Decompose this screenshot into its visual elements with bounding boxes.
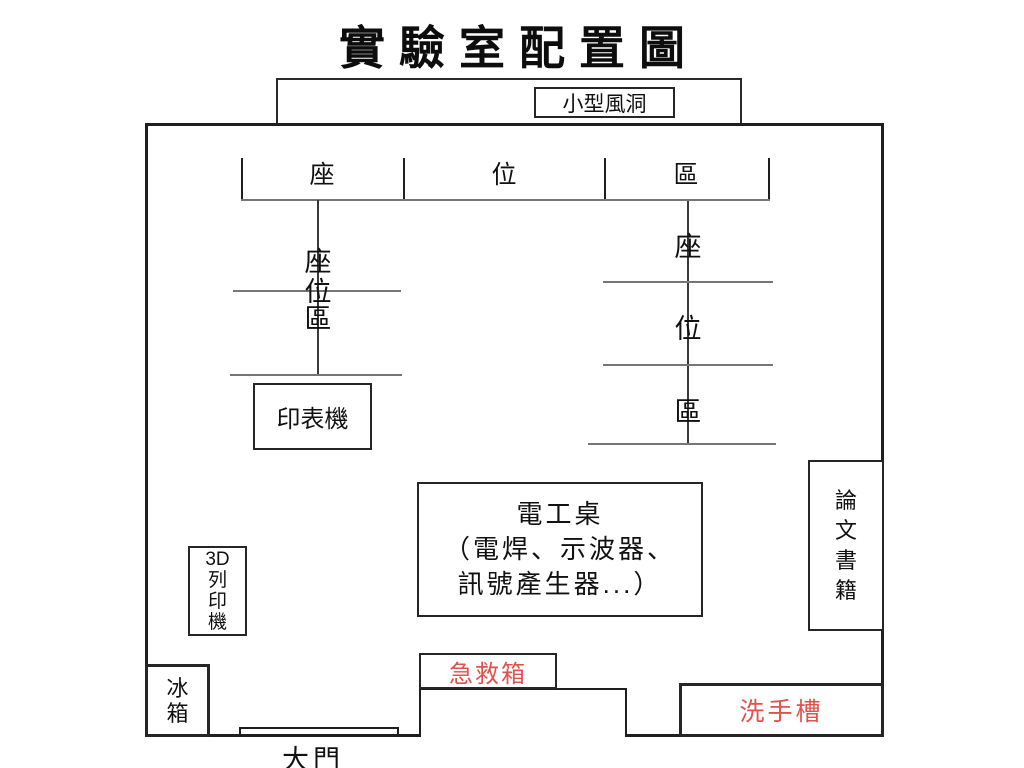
books-char-4: 籍: [835, 576, 857, 606]
wall-top: [145, 123, 884, 126]
sink-box: 洗手槽: [679, 683, 884, 737]
wall-left: [145, 123, 148, 737]
right-seating-char-2: 位: [675, 316, 702, 343]
left-seating-char-1: 座: [305, 249, 332, 276]
printer-box: 印表機: [253, 383, 372, 450]
printer-3d-line-2: 列: [208, 570, 227, 591]
door-label: 大門: [282, 738, 344, 768]
workbench-line-3: 訊號產生器...）: [458, 567, 663, 602]
page-title: 實驗室配置圖: [0, 12, 1024, 78]
first-aid-box: 急救箱: [419, 653, 557, 689]
fridge-char-2: 箱: [166, 701, 188, 726]
seating-bar-tick-4: [768, 158, 770, 201]
counter-right-edge: [625, 690, 627, 736]
seating-bar-label-1: 座: [309, 162, 334, 188]
counter-left-edge: [419, 690, 421, 736]
books-char-1: 論: [835, 486, 857, 516]
right-seating-char-1: 座: [675, 234, 702, 261]
sink-label: 洗手槽: [739, 692, 823, 728]
seating-bar-bottom: [241, 199, 770, 201]
seating-bar-tick-2: [403, 158, 405, 201]
left-seating-char-2: 位: [305, 279, 332, 306]
right-seating-char-3: 區: [675, 399, 702, 426]
seating-bar-tick-3: [604, 158, 606, 201]
right-column-bottom: [588, 443, 776, 445]
seating-bar-label-3: 區: [673, 162, 698, 188]
right-column-cross-2: [603, 364, 773, 366]
door-right-edge: [397, 727, 399, 735]
printer-3d-line-4: 機: [208, 612, 227, 633]
printer-3d-line-3: 印: [208, 591, 227, 612]
first-aid-label: 急救箱: [449, 654, 527, 689]
books-shelf-box: 論 文 書 籍: [808, 460, 884, 631]
wind-tunnel-box: 小型風洞: [534, 87, 675, 118]
floor-plan: 實驗室配置圖 小型風洞 座 位 區 座 位 區 座 位 區 印表機 電工桌 （電…: [0, 0, 1024, 768]
wind-tunnel-label: 小型風洞: [563, 88, 647, 118]
seating-bar-label-2: 位: [491, 162, 516, 188]
fridge-box: 冰 箱: [145, 664, 210, 737]
books-char-3: 書: [835, 546, 857, 576]
seating-bar-tick-1: [241, 158, 243, 201]
left-seating-char-3: 區: [305, 306, 332, 333]
left-column-bottom: [230, 374, 402, 376]
wall-right: [881, 123, 884, 736]
door-top-edge: [239, 727, 399, 729]
right-column-cross-1: [603, 281, 773, 283]
workbench-line-1: 電工桌: [516, 497, 603, 532]
books-char-2: 文: [835, 516, 857, 546]
printer-label: 印表機: [277, 399, 349, 434]
wall-bottom-mid: [625, 734, 682, 737]
fridge-char-1: 冰: [166, 676, 188, 701]
printer-3d-line-1: 3D: [205, 549, 229, 570]
workbench-box: 電工桌 （電焊、示波器、 訊號產生器...）: [417, 482, 703, 617]
workbench-line-2: （電焊、示波器、: [444, 532, 676, 567]
printer-3d-box: 3D 列 印 機: [188, 546, 247, 636]
